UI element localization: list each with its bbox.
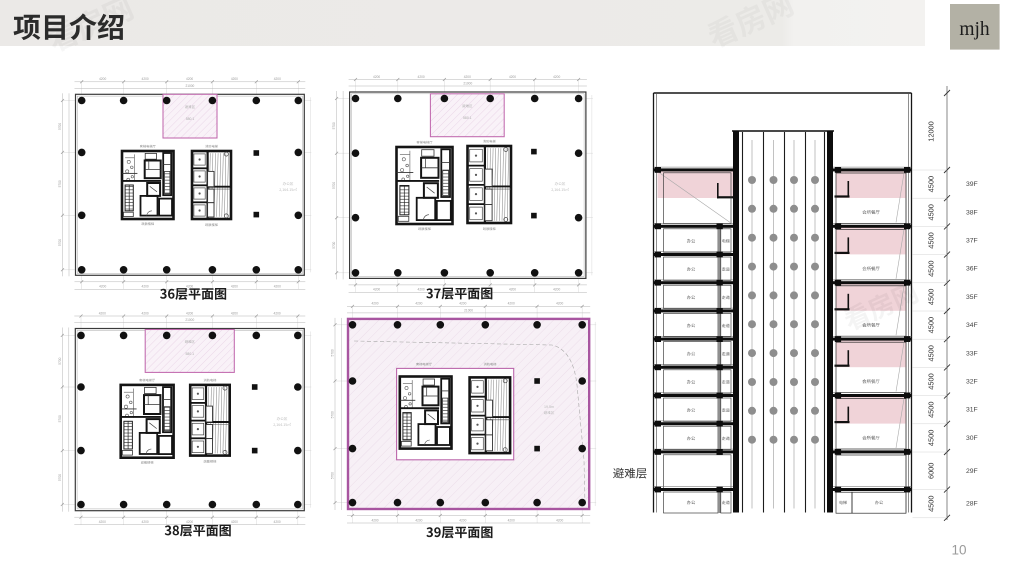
svg-text:4500: 4500 — [927, 373, 936, 389]
svg-text:4500: 4500 — [927, 176, 936, 192]
svg-text:32F: 32F — [966, 379, 978, 386]
svg-text:4200: 4200 — [553, 75, 560, 79]
svg-text:580.1: 580.1 — [186, 117, 195, 121]
svg-text:4200: 4200 — [556, 518, 563, 522]
svg-text:5700: 5700 — [331, 349, 335, 356]
svg-text:4200: 4200 — [186, 520, 193, 524]
svg-text:5700: 5700 — [332, 241, 336, 248]
svg-text:21000: 21000 — [463, 82, 472, 86]
svg-text:4200: 4200 — [274, 285, 281, 289]
svg-text:4200: 4200 — [99, 520, 106, 524]
svg-text:4200: 4200 — [186, 77, 193, 81]
svg-text:30F: 30F — [966, 435, 978, 442]
svg-text:21000: 21000 — [464, 309, 473, 313]
svg-text:4500: 4500 — [927, 232, 936, 248]
svg-text:28F: 28F — [966, 501, 978, 508]
svg-text:4500: 4500 — [927, 430, 936, 446]
svg-text:4200: 4200 — [464, 75, 471, 79]
svg-text:35F: 35F — [966, 294, 978, 301]
svg-text:4500: 4500 — [927, 260, 936, 276]
svg-text:5700: 5700 — [58, 415, 62, 422]
svg-text:4200: 4200 — [373, 75, 380, 79]
svg-text:29F: 29F — [966, 468, 978, 475]
svg-text:5700: 5700 — [332, 122, 336, 129]
svg-text:4500: 4500 — [927, 401, 936, 417]
svg-text:4200: 4200 — [371, 518, 378, 522]
svg-text:38F: 38F — [966, 209, 978, 216]
svg-text:5700: 5700 — [58, 357, 62, 364]
svg-text:4200: 4200 — [418, 288, 425, 292]
svg-text:4500: 4500 — [927, 317, 936, 333]
svg-text:5700: 5700 — [331, 411, 335, 418]
svg-text:4200: 4200 — [99, 311, 106, 315]
svg-text:4200: 4200 — [231, 520, 238, 524]
svg-text:4200: 4200 — [99, 77, 106, 81]
svg-text:4200: 4200 — [231, 77, 238, 81]
svg-text:33F: 33F — [966, 350, 978, 357]
svg-text:4200: 4200 — [508, 302, 515, 306]
svg-text:12000: 12000 — [927, 121, 936, 142]
svg-text:4200: 4200 — [186, 311, 193, 315]
svg-text:37F: 37F — [966, 238, 978, 245]
svg-text:4200: 4200 — [231, 311, 238, 315]
svg-text:4200: 4200 — [142, 77, 149, 81]
svg-text:4500: 4500 — [927, 495, 936, 511]
svg-text:580.1: 580.1 — [463, 116, 472, 120]
svg-text:5700: 5700 — [331, 472, 335, 479]
svg-text:4200: 4200 — [274, 311, 281, 315]
svg-text:4200: 4200 — [186, 285, 193, 289]
svg-text:36F: 36F — [966, 266, 978, 273]
svg-text:4200: 4200 — [556, 302, 563, 306]
svg-text:19.5m: 19.5m — [544, 405, 554, 409]
svg-text:4200: 4200 — [371, 302, 378, 306]
svg-text:4200: 4200 — [553, 288, 560, 292]
svg-text:31F: 31F — [966, 407, 978, 414]
svg-text:4200: 4200 — [231, 285, 238, 289]
svg-text:10: 10 — [951, 543, 966, 558]
svg-text:4200: 4200 — [459, 518, 466, 522]
svg-text:5700: 5700 — [58, 474, 62, 481]
svg-text:4200: 4200 — [415, 518, 422, 522]
svg-text:4200: 4200 — [142, 520, 149, 524]
svg-text:4200: 4200 — [509, 75, 516, 79]
svg-text:5700: 5700 — [58, 180, 62, 187]
svg-text:4200: 4200 — [142, 285, 149, 289]
svg-text:5700: 5700 — [58, 123, 62, 130]
svg-text:4500: 4500 — [927, 289, 936, 305]
svg-text:4200: 4200 — [274, 77, 281, 81]
svg-text:6000: 6000 — [927, 463, 936, 479]
svg-text:4500: 4500 — [927, 204, 936, 220]
svg-text:4200: 4200 — [418, 75, 425, 79]
svg-text:mjh: mjh — [959, 19, 990, 40]
svg-text:4200: 4200 — [415, 302, 422, 306]
svg-text:4200: 4200 — [142, 311, 149, 315]
svg-text:580.1: 580.1 — [186, 352, 195, 356]
svg-text:5700: 5700 — [332, 182, 336, 189]
svg-text:4200: 4200 — [274, 520, 281, 524]
svg-text:4200: 4200 — [509, 288, 516, 292]
svg-text:5700: 5700 — [58, 239, 62, 246]
svg-text:34F: 34F — [966, 322, 978, 329]
svg-text:4200: 4200 — [373, 288, 380, 292]
svg-text:21000: 21000 — [185, 318, 194, 322]
svg-text:4200: 4200 — [459, 302, 466, 306]
svg-text:21000: 21000 — [185, 84, 194, 88]
svg-text:39F: 39F — [966, 181, 978, 188]
svg-text:4200: 4200 — [99, 285, 106, 289]
svg-text:4500: 4500 — [927, 345, 936, 361]
svg-text:4200: 4200 — [508, 518, 515, 522]
